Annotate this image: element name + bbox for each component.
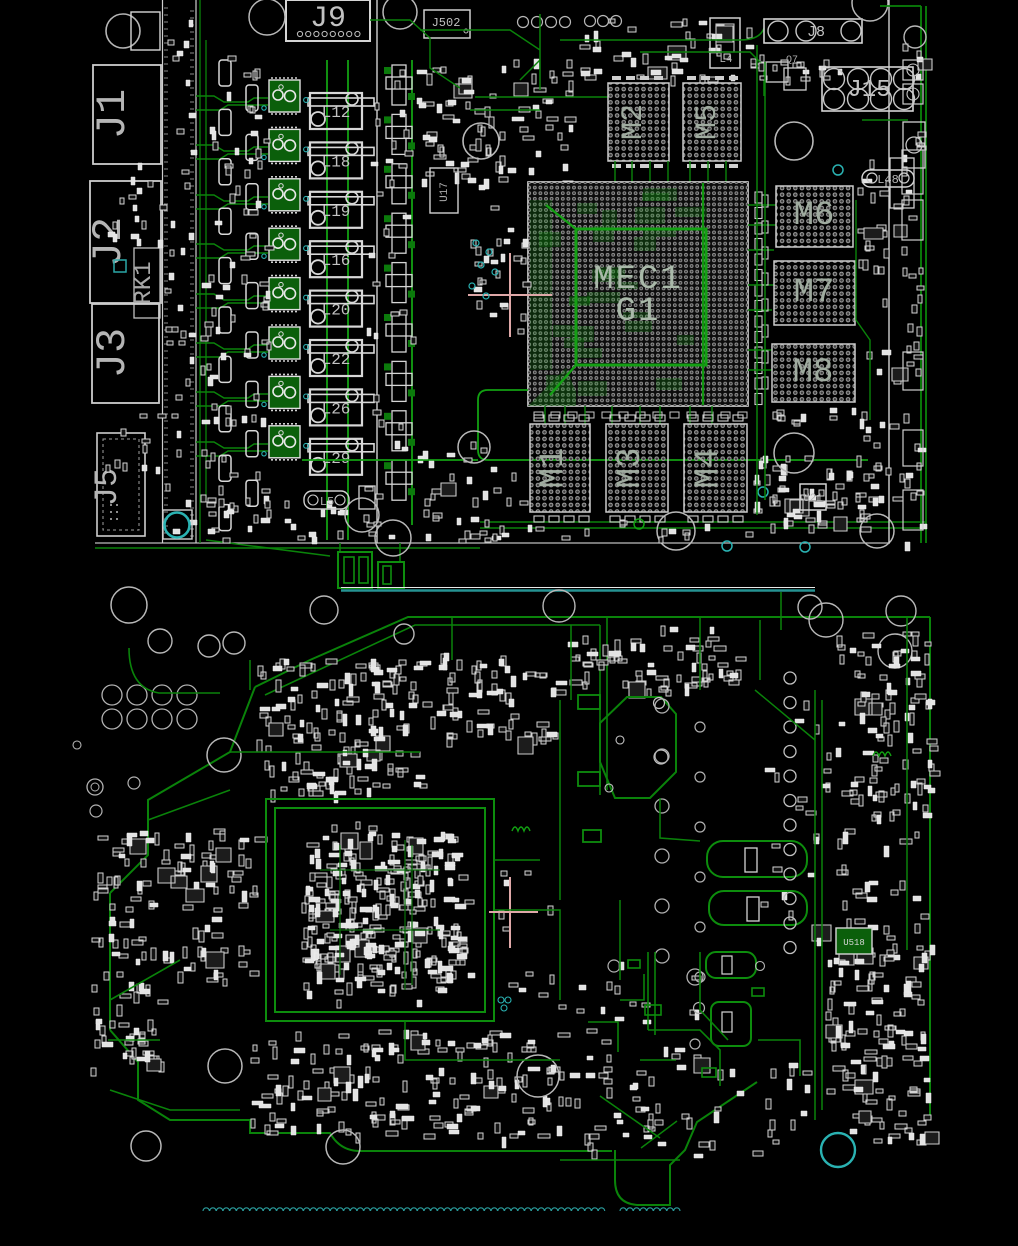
svg-text:M5: M5: [691, 104, 725, 140]
svg-text:L22: L22: [322, 351, 351, 369]
svg-text:L26: L26: [322, 400, 351, 418]
svg-text:L16: L16: [322, 252, 351, 270]
svg-text:J15: J15: [847, 77, 890, 104]
svg-text:L48: L48: [877, 173, 899, 187]
svg-text:J9: J9: [310, 2, 346, 36]
svg-text:U518: U518: [843, 938, 865, 948]
svg-text:Q7: Q7: [786, 55, 798, 66]
svg-text:M2: M2: [617, 104, 651, 140]
svg-text:M1: M1: [535, 448, 573, 489]
svg-text:M4: M4: [690, 448, 728, 489]
svg-text:L18: L18: [322, 153, 351, 171]
svg-text:L12: L12: [322, 104, 351, 122]
svg-text:L20: L20: [322, 302, 351, 320]
svg-text:M7: M7: [794, 274, 835, 312]
svg-text:L5: L5: [320, 495, 334, 509]
svg-text:U17: U17: [439, 182, 451, 202]
svg-text:M6: M6: [794, 197, 835, 235]
svg-text:J8: J8: [807, 24, 825, 41]
svg-text:J5: J5: [89, 468, 126, 506]
svg-text:M8: M8: [793, 354, 834, 392]
svg-text:RK1: RK1: [131, 261, 158, 304]
svg-text:U21: U21: [803, 493, 823, 505]
svg-text:J1: J1: [89, 89, 137, 139]
svg-text:J502: J502: [432, 16, 461, 30]
svg-text:G1: G1: [616, 293, 661, 331]
svg-text:L29: L29: [322, 450, 351, 468]
svg-text:J3: J3: [89, 328, 137, 378]
svg-text:M3: M3: [612, 448, 650, 489]
svg-text:L19: L19: [322, 203, 351, 221]
svg-text:L4: L4: [719, 54, 733, 66]
